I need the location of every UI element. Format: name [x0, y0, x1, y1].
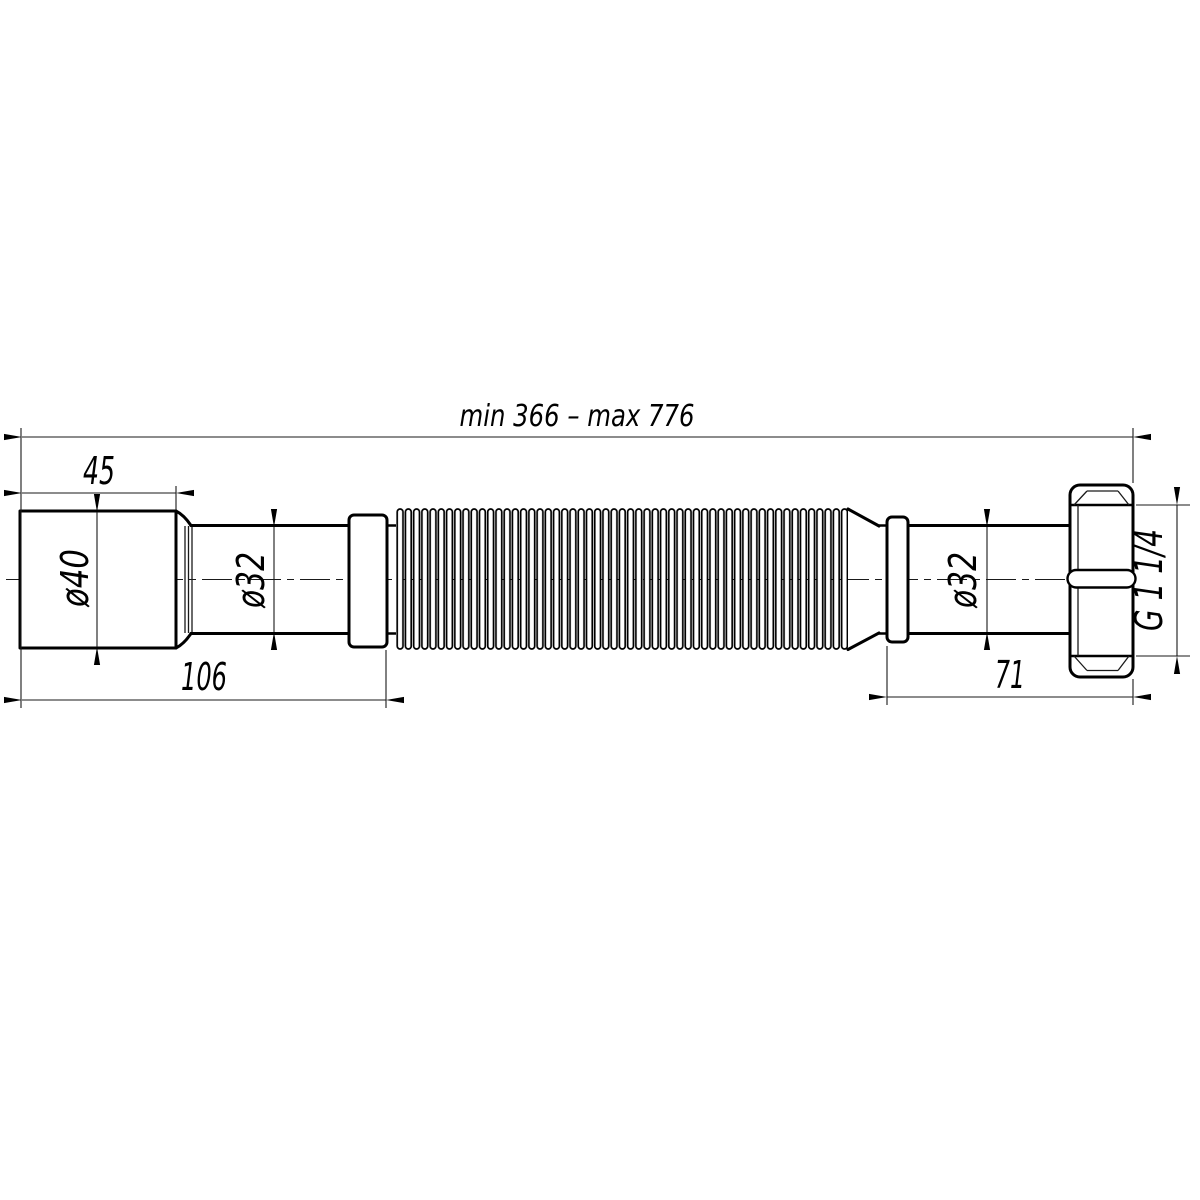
technical-drawing: min 366 – max 776 45 106 71 ø40 ø3 [0, 0, 1200, 1200]
dim-label-d32-right: ø32 [941, 552, 985, 609]
inlet-shoulder-top [176, 511, 191, 526]
dim-label-45: 45 [83, 449, 115, 493]
drawing-canvas: min 366 – max 776 45 106 71 ø40 ø3 [0, 0, 1200, 1200]
dim-label-thread: G 1 1/4 [1127, 529, 1171, 631]
dim-left-pipe-diameter: ø32 [229, 527, 274, 632]
dim-right-pipe-diameter: ø32 [941, 527, 987, 632]
nut-slot [1068, 570, 1136, 588]
dim-label-106: 106 [181, 655, 227, 699]
dim-label-overall: min 366 – max 776 [460, 399, 695, 434]
right-collar [887, 517, 908, 642]
union-nut [1068, 485, 1136, 677]
dim-left-length: 106 [22, 650, 386, 708]
dim-label-d32-left: ø32 [229, 552, 273, 609]
left-collar [349, 515, 387, 647]
inlet-port [20, 511, 176, 648]
dim-inlet-length: 45 [22, 449, 176, 510]
dim-label-71: 71 [995, 653, 1025, 697]
corrugated-hose [396, 507, 848, 651]
dim-label-d40: ø40 [53, 549, 97, 608]
inlet-shoulder-bottom [176, 634, 191, 649]
dim-nut-thread: G 1 1/4 [1127, 505, 1190, 656]
